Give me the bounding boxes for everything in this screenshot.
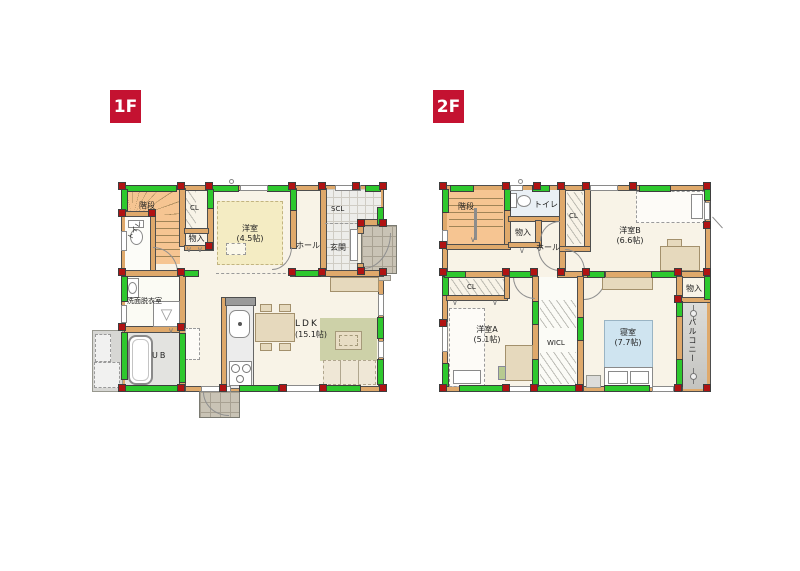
room-label-monoire2-2f: 物入 (682, 284, 706, 294)
green-brace (677, 360, 682, 386)
toilet-bowl (517, 195, 531, 207)
pillar (583, 269, 589, 275)
pillar (380, 220, 386, 226)
bifold-door-mark: ∨ (186, 245, 192, 254)
room-label-cl-upper-2f: CL (569, 212, 578, 221)
dining-chair (279, 304, 291, 312)
washbasin-bowl (128, 282, 137, 294)
pillar (675, 296, 681, 302)
desk-chair (667, 239, 682, 247)
pillar (534, 183, 540, 189)
green-brace (212, 186, 238, 191)
room-label-wicl-2f: WICL (547, 339, 565, 348)
room-label-ldk-1f: LDK (15.1帖) (295, 319, 327, 340)
pillar (119, 183, 125, 189)
exterior-line-mark (712, 217, 723, 229)
window (240, 185, 268, 191)
sofa-cushion-line (358, 361, 359, 384)
pillar (503, 183, 509, 189)
pillar (119, 385, 125, 391)
pillar (289, 183, 295, 189)
green-brace (505, 190, 510, 210)
pillar (704, 222, 710, 228)
green-brace (184, 271, 198, 276)
desk-yoshitsu-b (660, 246, 700, 271)
burner (231, 364, 240, 373)
floor-badge-2f: 2F (433, 90, 464, 123)
bathtub-inner (132, 339, 149, 381)
pillar (178, 269, 184, 275)
vent-mark (229, 179, 234, 184)
pillar (206, 183, 212, 189)
pillar (583, 183, 589, 189)
tv-board (330, 277, 379, 292)
wicl-hanger-hatch (540, 352, 576, 384)
bifold-door-mark: ∨ (452, 298, 458, 307)
dining-chair (260, 343, 272, 351)
pillar (320, 385, 326, 391)
bifold-door-mark: ∨ (168, 326, 174, 335)
pillar (319, 269, 325, 275)
green-brace (378, 360, 383, 384)
dining-chair (279, 343, 291, 351)
green-brace (443, 364, 448, 386)
green-brace (443, 277, 448, 295)
bifold-door-mark: ∨ (197, 245, 203, 254)
vent-mark (518, 179, 523, 184)
floorplan-canvas: 1F ▽ (0, 0, 800, 571)
room-label-ub-1f: UB (152, 351, 167, 361)
green-brace (180, 334, 185, 382)
green-brace (291, 190, 296, 210)
room-label-yoshitsu-1f-name: 洋室 (217, 224, 283, 234)
pillar (380, 183, 386, 189)
stairs-direction-mark: ∨ (470, 235, 476, 244)
back-door-opening (201, 386, 231, 392)
pillar (119, 210, 125, 216)
pillar (358, 220, 364, 226)
water-heater-outline (95, 334, 111, 362)
range-hood-wall (226, 298, 255, 305)
room-label-yoshitsu-b-name: 洋室B (600, 226, 660, 236)
room-label-yoshitsu-1f: 洋室 (4.5帖) (217, 224, 283, 244)
green-brace (296, 271, 320, 276)
sofa (323, 360, 376, 385)
room-label-yoshitsu-b: 洋室B (6.6帖) (600, 226, 660, 246)
green-brace (460, 386, 504, 391)
window (652, 386, 674, 392)
green-brace (588, 272, 604, 277)
refrigerator-outline (185, 328, 200, 360)
room-label-yoshitsu-1f-size: (4.5帖) (217, 234, 283, 244)
equipment-outline (94, 362, 120, 388)
room-label-shinshitsu-name: 寝室 (598, 328, 658, 338)
pillow (453, 370, 481, 384)
window (507, 386, 533, 392)
room-label-balcony-2f: バルコニー (687, 318, 697, 378)
wall-segment (185, 229, 208, 233)
shoe-cabinet (350, 229, 358, 261)
pillar (531, 269, 537, 275)
pillar (119, 324, 125, 330)
pillar (531, 385, 537, 391)
wicl-hanger-hatch (540, 300, 576, 328)
dining-chair (260, 304, 272, 312)
desk-outline-yoshitsu-1f (226, 243, 246, 255)
balcony-rail-mark (690, 310, 697, 317)
green-brace (578, 318, 583, 340)
bifold-door-mark: ∨ (519, 246, 525, 255)
pillar (675, 269, 681, 275)
pillar (380, 385, 386, 391)
window (704, 202, 710, 220)
genkan-step-line (325, 223, 358, 224)
window (378, 294, 384, 316)
pillar (319, 183, 325, 189)
dining-table (255, 313, 295, 342)
dresser (602, 277, 653, 290)
green-brace (378, 318, 383, 338)
room-label-yoshitsu-a: 洋室A (5.1帖) (462, 325, 512, 345)
window (121, 231, 127, 251)
green-brace (652, 272, 676, 277)
room-label-ldk-1f-name: LDK (295, 319, 327, 330)
closet-hatch-cl-lower-2f (450, 279, 504, 297)
wall-segment (509, 217, 561, 221)
green-brace (705, 188, 710, 200)
pillar (220, 385, 226, 391)
window (510, 185, 523, 191)
room-label-hall-2f: ホール (536, 243, 560, 253)
coffee-table-inner (339, 335, 358, 346)
green-brace (324, 386, 360, 391)
room-label-yoshitsu-b-size: (6.6帖) (600, 236, 660, 246)
pillar (576, 385, 582, 391)
bifold-door-mark: ∨ (492, 298, 498, 307)
room-label-senmen-1f: 洗面脱衣室 (127, 297, 162, 306)
green-brace (126, 386, 180, 391)
sofa-cushion-line (340, 361, 341, 384)
room-label-scl-1f: SCL (331, 205, 344, 214)
pillar (440, 269, 446, 275)
pillar (440, 320, 446, 326)
toilet-tank (510, 193, 517, 208)
pillar (558, 269, 564, 275)
room-label-monoire-1f: 物入 (184, 234, 209, 244)
wall-segment (321, 189, 326, 273)
pillar (630, 183, 636, 189)
wall-segment (447, 245, 510, 249)
burner (236, 375, 244, 383)
window (121, 305, 127, 323)
pillar (440, 183, 446, 189)
room-label-toilet-2f: トイレ (534, 200, 558, 210)
faucet-dot (238, 322, 242, 326)
open-boundary-yoshitsu-ldk (216, 273, 291, 274)
chest (586, 375, 601, 388)
pillar (675, 385, 681, 391)
green-brace (366, 186, 380, 191)
green-brace (533, 302, 538, 324)
pillow (691, 194, 703, 219)
green-brace (510, 272, 532, 277)
pillar (380, 269, 386, 275)
pillow (608, 371, 628, 384)
room-label-shinshitsu-size: (7.7帖) (598, 338, 658, 348)
green-brace (240, 386, 278, 391)
green-brace (443, 190, 448, 212)
wall-segment (585, 190, 590, 250)
room-label-cl-1f: CL (190, 204, 199, 213)
pillar (353, 183, 359, 189)
room-label-yoshitsu-a-name: 洋室A (462, 325, 512, 335)
room-label-hall-1f: ホール (296, 241, 320, 251)
pillar (178, 324, 184, 330)
room-label-genkan-1f: 玄関 (330, 243, 346, 253)
pillar (704, 385, 710, 391)
pillar (178, 183, 184, 189)
wall-segment (505, 277, 509, 298)
green-brace (640, 186, 670, 191)
burner (242, 364, 251, 373)
room-label-stairs-1f: 階段 (139, 201, 155, 211)
pillar (503, 385, 509, 391)
pillar (280, 385, 286, 391)
pillar (704, 269, 710, 275)
floor-badge-1f: 1F (110, 90, 141, 123)
pillar (440, 385, 446, 391)
green-brace (677, 302, 682, 316)
green-brace (126, 186, 176, 191)
pillar (558, 183, 564, 189)
green-brace (122, 333, 127, 379)
room-label-ldk-1f-size: (15.1帖) (295, 330, 327, 340)
green-brace (451, 186, 473, 191)
pillar (178, 385, 184, 391)
window (442, 322, 448, 352)
green-brace (533, 360, 538, 386)
pillar (503, 269, 509, 275)
pillar (358, 268, 364, 274)
desk-chair (498, 366, 506, 380)
green-brace (535, 386, 577, 391)
desk-yoshitsu-a (505, 345, 533, 381)
pillar (289, 269, 295, 275)
green-brace (605, 386, 649, 391)
room-label-yoshitsu-a-size: (5.1帖) (462, 335, 512, 345)
window (378, 341, 384, 358)
green-brace (445, 272, 465, 277)
pillow (630, 371, 649, 384)
green-brace (208, 190, 213, 208)
window (590, 185, 618, 191)
green-brace (122, 190, 127, 210)
pillar (119, 269, 125, 275)
room-label-stairs-2f: 階段 (458, 202, 474, 212)
window (284, 385, 320, 392)
pillar (440, 242, 446, 248)
pillar (704, 183, 710, 189)
room-label-cl-lower-2f: CL (467, 283, 476, 292)
room-label-shinshitsu-2f: 寝室 (7.7帖) (598, 328, 658, 348)
room-label-monoire-2f: 物入 (509, 228, 537, 238)
